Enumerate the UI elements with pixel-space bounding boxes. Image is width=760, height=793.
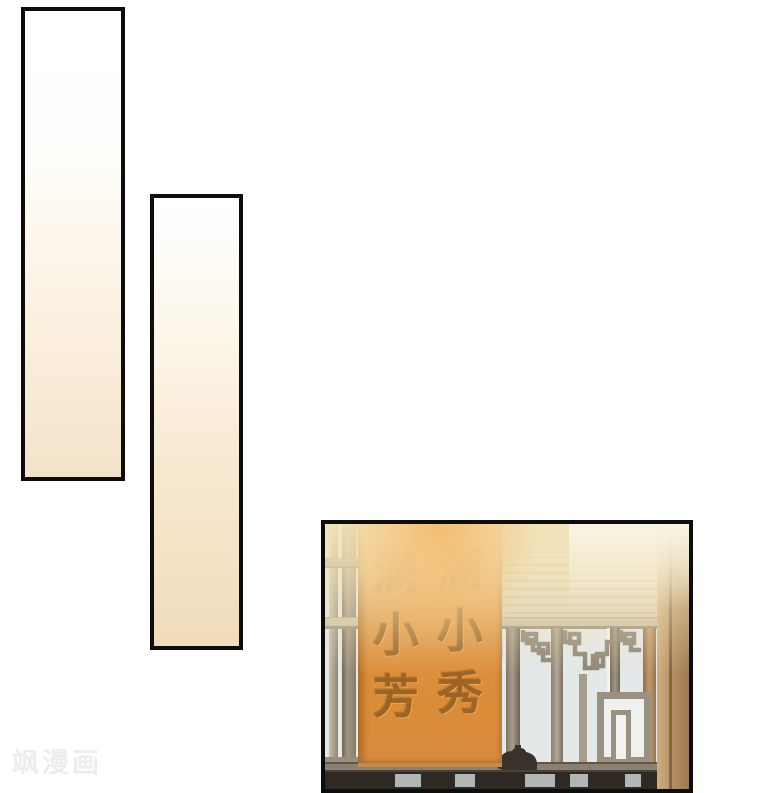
sill-gap [525, 774, 555, 787]
curtain [657, 524, 689, 789]
sill-gap [455, 774, 475, 787]
empty-panel-middle [150, 194, 243, 650]
banner-char: 芳 [373, 674, 419, 720]
banner-char: 满 [373, 550, 419, 596]
comic-page: 满 小 芳 满 小 秀 飒漫画 [0, 0, 760, 793]
hanging-banner: 满 小 芳 满 小 秀 [358, 524, 502, 767]
watermark: 飒漫画 [12, 741, 102, 780]
banner-char: 小 [437, 608, 483, 654]
empty-panel-top-left [21, 7, 125, 481]
window-crossbar-upper-left [325, 558, 359, 568]
curtain-fold-line [669, 524, 672, 789]
banner-char: 满 [437, 546, 483, 592]
door-frame-inner [611, 710, 631, 764]
banner-text-column-right: 满 小 秀 [434, 546, 486, 716]
sill-gap [395, 774, 421, 787]
banner-char: 秀 [437, 670, 483, 716]
banner-char: 小 [373, 612, 419, 658]
sill-gap [625, 774, 641, 787]
window-scene-panel: 满 小 芳 满 小 秀 [321, 520, 693, 793]
lattice-fretwork [475, 628, 655, 690]
sill-gap [570, 774, 588, 787]
banner-text-column-left: 满 小 芳 [370, 550, 422, 720]
